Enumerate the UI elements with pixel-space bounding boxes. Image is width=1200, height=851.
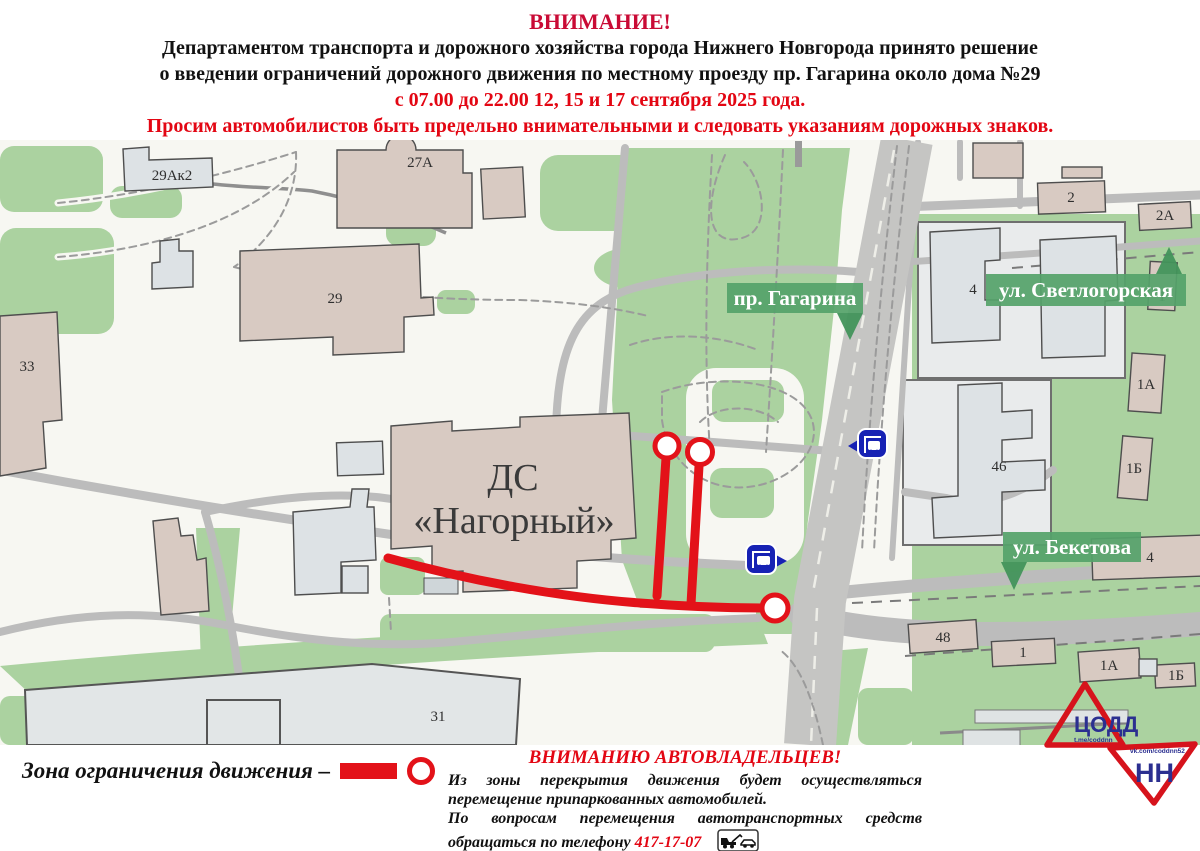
notice-paragraph-2: По вопросам перемещения автотранспортных…	[448, 809, 922, 851]
building-label-48: 48	[936, 630, 951, 646]
building-label-2a: 2А	[1156, 208, 1175, 224]
header-line-2: о введении ограничений дорожного движени…	[0, 61, 1200, 87]
building-label-33: 33	[20, 359, 35, 375]
announcement-header: ВНИМАНИЕ! Департаментом транспорта и дор…	[0, 0, 1200, 140]
restriction-line-swatch	[340, 763, 397, 779]
venue-label-line2: «Нагорный»	[413, 500, 614, 542]
owners-notice: ВНИМАНИЮ АВТОВЛАДЕЛЬЦЕВ! Из зоны перекры…	[448, 747, 922, 851]
building-label-1-beketova: 1	[1019, 645, 1027, 661]
notice-paragraph-1: Из зоны перекрытия движения будет осущес…	[448, 771, 922, 809]
logo-title: ЦОДД	[1074, 712, 1139, 737]
street-label-svetlogorskaya: ул. Светлогорская	[999, 278, 1173, 302]
traffic-restriction-poster: ВНИМАНИЕ! Департаментом транспорта и дор…	[0, 0, 1200, 851]
notice-heading: ВНИМАНИЮ АВТОВЛАДЕЛЬЦЕВ!	[448, 747, 922, 769]
legend-footer: Зона ограничения движения – ВНИМАНИЮ АВТ…	[0, 745, 1200, 851]
building-label-31: 31	[431, 709, 446, 725]
codd-nn-logo: ЦОДД t.me/coddnn vk.com/coddnn52 НН	[1030, 676, 1200, 812]
logo-telegram-link: t.me/coddnn	[1074, 737, 1113, 744]
legend: Зона ограничения движения –	[22, 757, 435, 785]
building-label-2: 2	[1067, 190, 1075, 206]
logo-vk-link: vk.com/coddnn52	[1130, 748, 1185, 755]
street-label-gagarina: пр. Гагарина	[734, 286, 857, 310]
restriction-endpoint-icon	[688, 440, 713, 465]
header-line-1: Департаментом транспорта и дорожного хоз…	[0, 35, 1200, 61]
street-label-beketova: ул. Бекетова	[1013, 535, 1132, 559]
building-label-46: 46	[992, 459, 1008, 475]
legend-label: Зона ограничения движения –	[22, 758, 330, 784]
building-label-27a: 27А	[407, 155, 433, 171]
building-label-1a-beketova: 1А	[1100, 658, 1119, 674]
restriction-endpoint-icon	[762, 595, 788, 621]
restriction-endpoint-swatch	[407, 757, 435, 785]
tow-truck-icon	[717, 829, 759, 851]
restriction-endpoint-icon	[655, 434, 679, 458]
building-label-4-beketova: 4	[1146, 550, 1154, 566]
phone-number: 417-17-07	[635, 834, 702, 851]
building-label-1b-svetl: 1Б	[1126, 461, 1142, 477]
building-label-4: 4	[969, 282, 977, 298]
building-label-1a-svetl: 1А	[1137, 377, 1156, 393]
attention-title: ВНИМАНИЕ!	[0, 9, 1200, 35]
header-dates-line: с 07.00 до 22.00 12, 15 и 17 сентября 20…	[0, 87, 1200, 113]
building-label-29: 29	[328, 291, 343, 307]
venue-label-line1: ДС	[487, 457, 538, 499]
logo-region: НН	[1135, 758, 1174, 788]
header-warning-line: Просим автомобилистов быть предельно вни…	[0, 113, 1200, 139]
building-label-29ak2: 29Ак2	[152, 168, 193, 184]
city-map: 29Ак2 27А 29 33 31 2 2А 4 46 1 1А 1Б 4 4…	[0, 140, 1200, 745]
